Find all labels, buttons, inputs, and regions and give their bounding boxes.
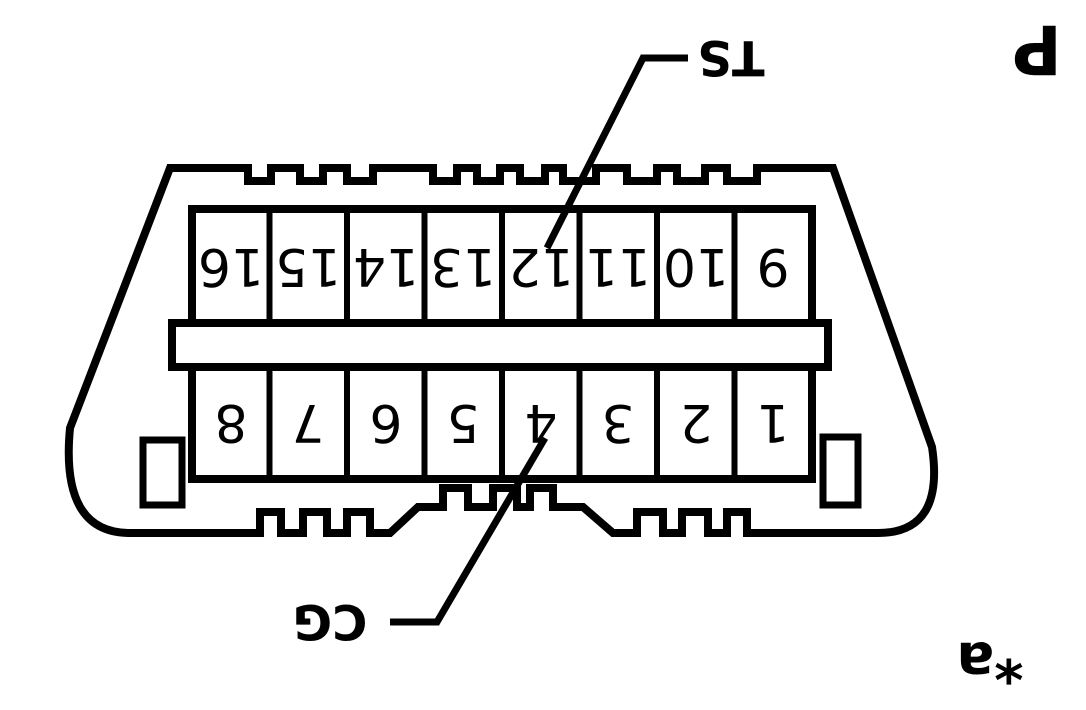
pin-number: 1 xyxy=(756,392,789,452)
pin-number: 7 xyxy=(291,392,324,452)
right-latch-slot xyxy=(823,437,858,505)
diagram-canvas: 16 15 14 13 12 11 10 9 8 7 6 5 4 3 2 1 T… xyxy=(0,0,1086,710)
pin-number: 6 xyxy=(369,392,402,452)
cg-label: CG xyxy=(293,593,368,649)
pin-number: 12 xyxy=(508,236,574,296)
pin-number: 13 xyxy=(430,236,496,296)
ts-label: TS xyxy=(697,29,764,85)
center-key-bar xyxy=(172,323,828,367)
pin-number: 14 xyxy=(353,236,419,296)
left-latch-slot xyxy=(143,440,182,505)
corner-letter: P xyxy=(1012,9,1062,88)
pin-number: 8 xyxy=(214,392,247,452)
upper-pin-numbers: 16 15 14 13 12 11 10 9 xyxy=(198,236,790,296)
pin-number: 16 xyxy=(198,236,264,296)
pin-number: 5 xyxy=(446,392,479,452)
pin-number: 3 xyxy=(601,392,634,452)
pin-number: 15 xyxy=(275,236,341,296)
footnote-marker: *a xyxy=(956,629,1023,694)
pin-number: 2 xyxy=(679,392,712,452)
pin-number: 9 xyxy=(756,236,789,296)
pin-number: 10 xyxy=(663,236,729,296)
connector-pinout-diagram: 16 15 14 13 12 11 10 9 8 7 6 5 4 3 2 1 T… xyxy=(0,0,1086,710)
pin-number: 11 xyxy=(585,236,651,296)
